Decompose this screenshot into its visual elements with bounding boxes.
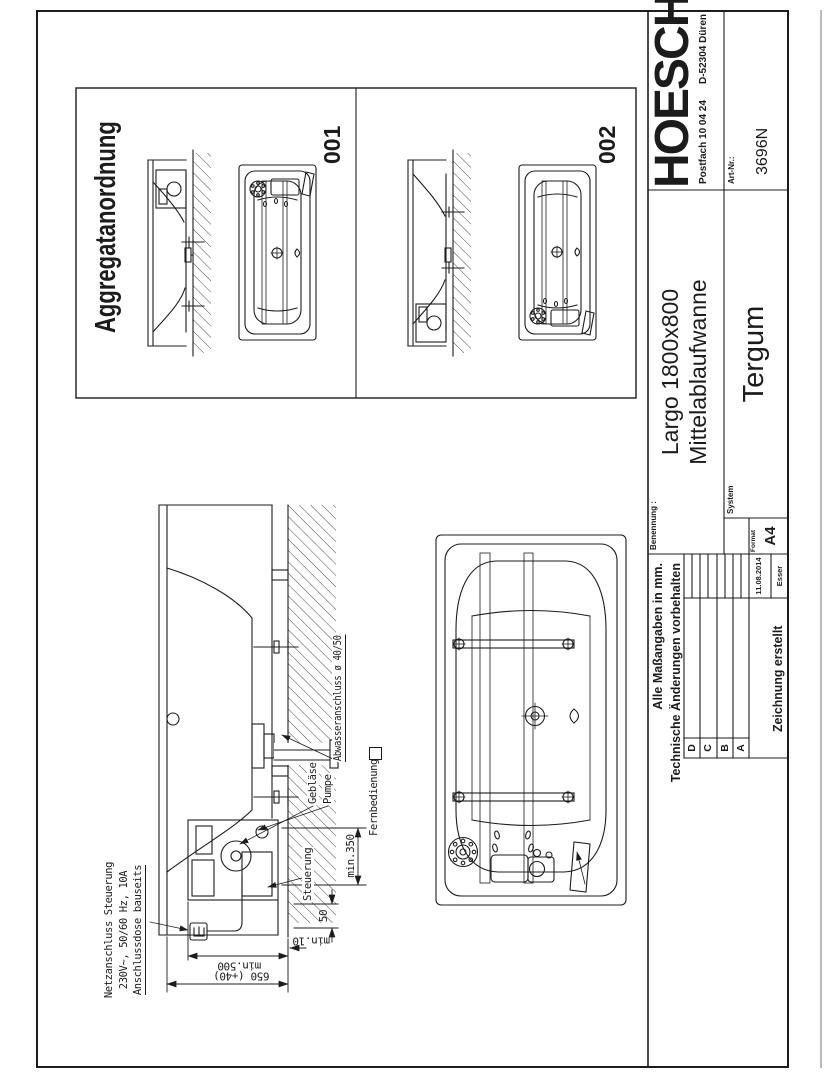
view-001-side: [148, 150, 211, 356]
artnr-label: Art-Nr.:: [727, 156, 736, 184]
brand-logo: HOESCH: [645, 10, 700, 188]
view-number-001: 001: [319, 126, 346, 164]
view-002-plan: [519, 165, 596, 340]
dim-min-10: min.10: [272, 935, 352, 948]
netzanschluss-line2: 230V~, 50/60 Hz, 10A: [117, 832, 132, 1028]
netzanschluss-line3-text: Anschlussdose bauseits: [132, 865, 146, 995]
aggregat-box: [76, 88, 636, 398]
revision-row-b: B: [719, 738, 731, 758]
abwasseranschluss-text: Abwasseranschluss ø 40/50: [332, 634, 346, 762]
paper-edge: [820, 10, 822, 1068]
label-fernbedienung: Fernbedienung: [368, 759, 380, 836]
system-label: System: [726, 486, 735, 514]
brand-address-pobox: Postfach 10 04 24: [698, 100, 709, 184]
dim-min-350: min.350: [344, 827, 357, 885]
aggregat-title: Aggregatanordnung: [90, 121, 123, 333]
label-pumpe: Pumpe: [322, 773, 334, 805]
netzanschluss-line1: Netzanschluss Steuerung: [102, 832, 117, 1028]
main-plan-view: [436, 535, 626, 905]
revision-row-c: C: [702, 738, 714, 758]
fernbedienung-square-icon: [369, 747, 382, 760]
created-by: Esser: [775, 554, 784, 598]
label-steuerung: Steuerung: [302, 847, 314, 902]
format-value: A4: [762, 518, 779, 554]
label-geblaese: Gebläse: [307, 762, 319, 805]
drawing-frame: Aggregatanordnung 001 002 Netzanschluss …: [36, 10, 789, 1068]
product-name: Largo 1800x800 Mittelablaufwanne: [656, 190, 712, 554]
revision-row-d: D: [686, 738, 698, 758]
product-name-line1: Largo 1800x800: [656, 190, 684, 554]
brand-address-city: D-52304 Düren: [698, 14, 709, 84]
label-netzanschluss: Netzanschluss Steuerung 230V~, 50/60 Hz,…: [102, 832, 146, 1028]
label-abwasseranschluss: Abwasseranschluss ø 40/50: [332, 634, 344, 762]
view-001-plan: [239, 165, 316, 340]
dim-50: 50: [317, 903, 330, 929]
revision-row-a: A: [735, 738, 747, 758]
note-changes: Technische Änderungen vorbehalten: [669, 563, 683, 868]
note-units: Alle Maßangaben in mm.: [651, 563, 665, 868]
brand-address: Postfach 10 04 24 D-52304 Düren: [698, 14, 709, 184]
view-number-002: 002: [594, 126, 621, 164]
created-label: Zeichnung erstellt: [770, 626, 785, 732]
scanned-technical-drawing: Aggregatanordnung 001 002 Netzanschluss …: [0, 0, 835, 1080]
format-label: Format: [750, 530, 757, 552]
created-date: 11.08.2014: [754, 554, 763, 598]
view-002-side: [408, 150, 471, 356]
artnr-value: 3696N: [754, 128, 772, 175]
product-name-line2: Mittelablaufwanne: [684, 190, 712, 554]
netzanschluss-line3: Anschlussdose bauseits: [131, 832, 146, 1028]
dim-650: 650 (+40): [202, 970, 282, 983]
system-name: Tergum: [738, 190, 771, 518]
